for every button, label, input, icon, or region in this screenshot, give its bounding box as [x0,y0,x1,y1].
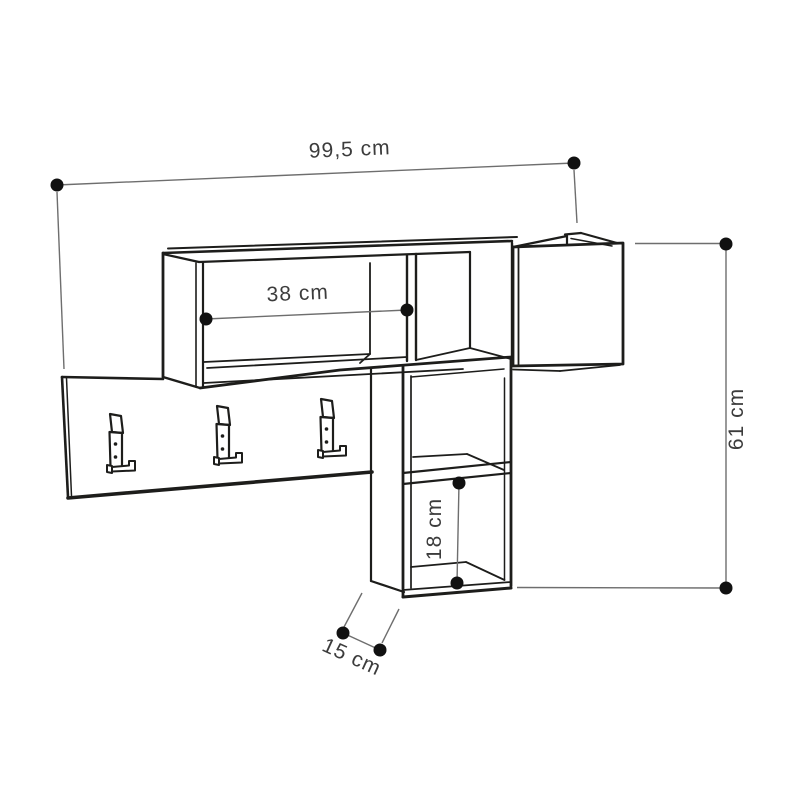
dimension-inner-height-label: 18 cm [423,498,446,560]
coat-hook-2 [214,406,242,465]
right-open-box [513,233,623,371]
dimension-height: 61 cm [517,238,748,595]
lower-box [371,360,511,597]
dimension-depth: 15 cm [319,593,399,680]
dimension-inner-height: 18 cm [423,477,466,590]
dimension-height-label: 61 cm [725,388,748,450]
coat-hook-3 [318,399,346,458]
dimension-width: 99,5 cm [51,136,581,369]
furniture-dimension-diagram: 99,5 cm 38 cm 61 cm 18 cm 15 cm [0,0,800,800]
dimension-shelf-width: 38 cm [200,281,414,326]
dimension-depth-label: 15 cm [319,634,385,681]
coat-hook-1 [107,414,135,473]
diagram-canvas: 99,5 cm 38 cm 61 cm 18 cm 15 cm [0,0,800,800]
dimension-width-label: 99,5 cm [308,136,391,163]
dimension-shelf-width-label: 38 cm [266,281,329,307]
